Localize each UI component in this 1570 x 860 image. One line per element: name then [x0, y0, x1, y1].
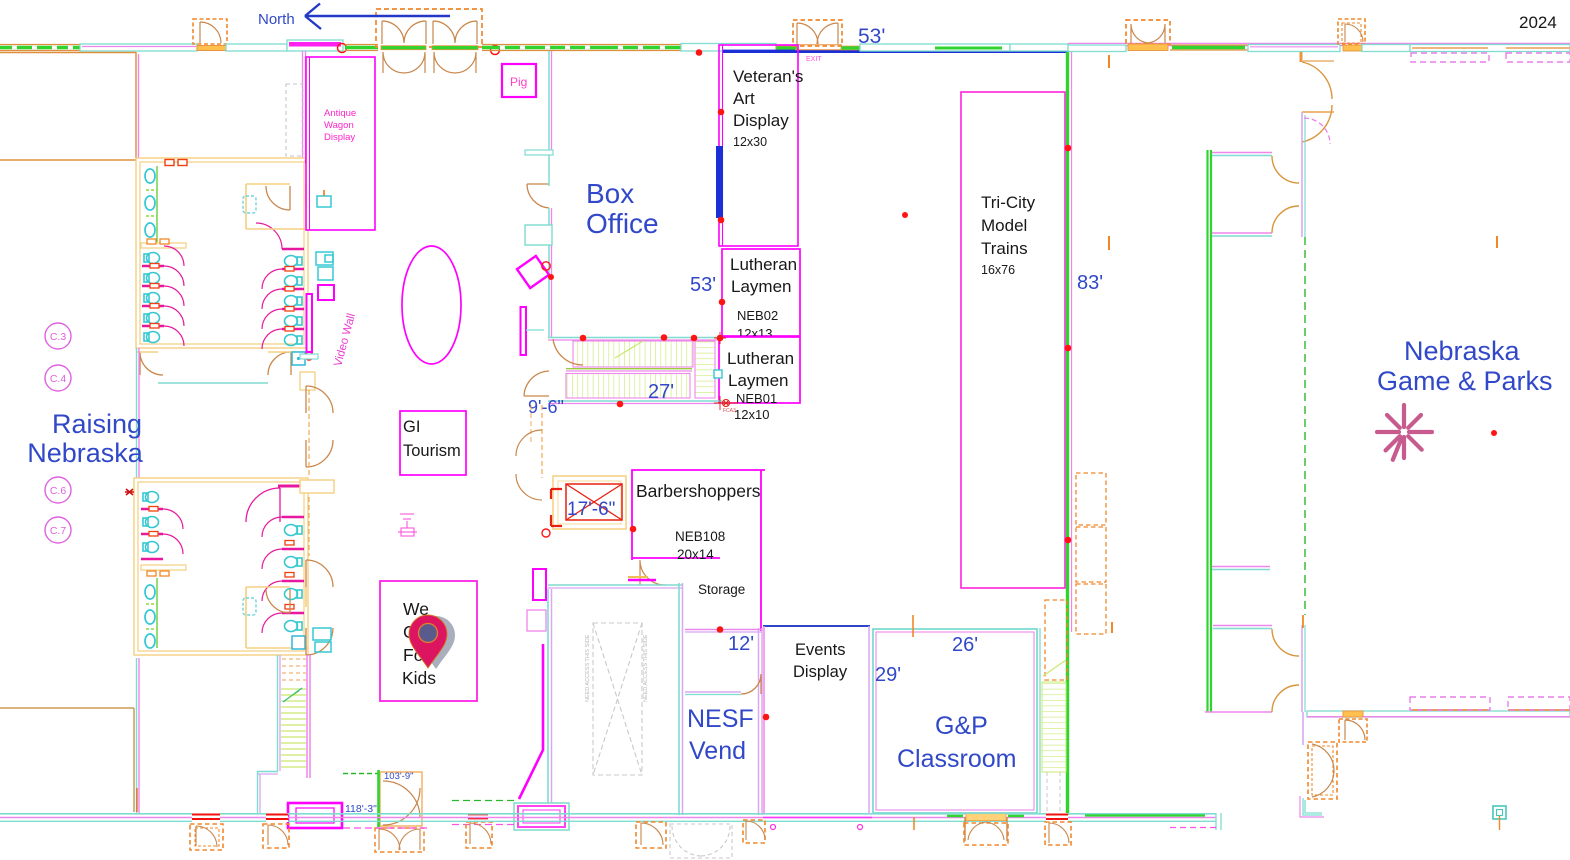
svg-text:Display: Display	[324, 132, 355, 143]
svg-text:27': 27'	[648, 381, 674, 403]
svg-text:NEB02: NEB02	[737, 308, 778, 323]
svg-text:Lutheran: Lutheran	[727, 349, 794, 368]
svg-text:Vend: Vend	[689, 737, 746, 765]
svg-text:53': 53'	[690, 274, 716, 296]
svg-text:GI: GI	[403, 418, 420, 436]
svg-text:Display: Display	[733, 111, 789, 130]
svg-text:83': 83'	[1077, 272, 1103, 294]
svg-text:Lutheran: Lutheran	[730, 255, 797, 274]
svg-text:C.7: C.7	[50, 525, 67, 537]
svg-text:Veteran's: Veteran's	[733, 67, 803, 86]
svg-text:Events: Events	[795, 641, 845, 659]
svg-text:Wagon: Wagon	[324, 120, 354, 131]
svg-text:Barbershoppers: Barbershoppers	[636, 481, 761, 501]
svg-text:Laymen: Laymen	[728, 371, 788, 390]
svg-text:NEED ACCESS THIS SIDE: NEED ACCESS THIS SIDE	[585, 634, 591, 702]
svg-text:9'-6": 9'-6"	[528, 397, 564, 417]
svg-text:Display: Display	[793, 663, 848, 681]
svg-text:20x14: 20x14	[677, 547, 714, 562]
svg-text:29': 29'	[875, 664, 901, 686]
svg-text:12': 12'	[728, 633, 754, 655]
svg-text:North: North	[258, 11, 295, 28]
svg-text:Office: Office	[586, 208, 659, 239]
svg-text:Pig: Pig	[510, 75, 527, 89]
svg-text:Kids: Kids	[402, 668, 436, 688]
svg-text:NEB01: NEB01	[736, 391, 777, 406]
svg-text:C.4: C.4	[50, 373, 67, 385]
svg-text:12x10: 12x10	[734, 407, 769, 422]
svg-text:103'-9": 103'-9"	[384, 771, 413, 782]
svg-text:FCA3: FCA3	[723, 408, 736, 414]
svg-text:26': 26'	[952, 634, 978, 656]
svg-text:G&P: G&P	[935, 712, 988, 740]
svg-text:Nebraska: Nebraska	[27, 438, 144, 468]
svg-text:Art: Art	[733, 89, 755, 108]
svg-text:17'-6": 17'-6"	[567, 499, 615, 520]
svg-text:16x76: 16x76	[981, 263, 1015, 277]
svg-text:Game & Parks: Game & Parks	[1377, 366, 1553, 396]
svg-text:12x30: 12x30	[733, 135, 767, 149]
svg-text:Laymen: Laymen	[731, 277, 791, 296]
svg-text:Model: Model	[981, 216, 1027, 235]
svg-text:Video Wall: Video Wall	[332, 312, 358, 368]
svg-text:Trains: Trains	[981, 239, 1028, 258]
svg-text:2024: 2024	[1519, 13, 1557, 32]
svg-text:Storage: Storage	[698, 582, 745, 597]
svg-text:EXIT: EXIT	[806, 56, 822, 63]
svg-text:NESF: NESF	[687, 705, 754, 733]
svg-text:C.6: C.6	[50, 485, 67, 497]
svg-text:NEB108: NEB108	[675, 529, 725, 544]
svg-text:C.3: C.3	[50, 331, 67, 343]
svg-text:Tourism: Tourism	[403, 442, 461, 460]
svg-text:Antique: Antique	[324, 108, 356, 119]
svg-text:Tri-City: Tri-City	[981, 193, 1036, 212]
svg-text:NEED ACCESS THIS SIDE: NEED ACCESS THIS SIDE	[643, 634, 649, 702]
svg-text:Classroom: Classroom	[897, 745, 1016, 773]
svg-text:Raising: Raising	[52, 409, 142, 439]
svg-text:Nebraska: Nebraska	[1404, 336, 1521, 366]
svg-text:Box: Box	[586, 178, 634, 209]
